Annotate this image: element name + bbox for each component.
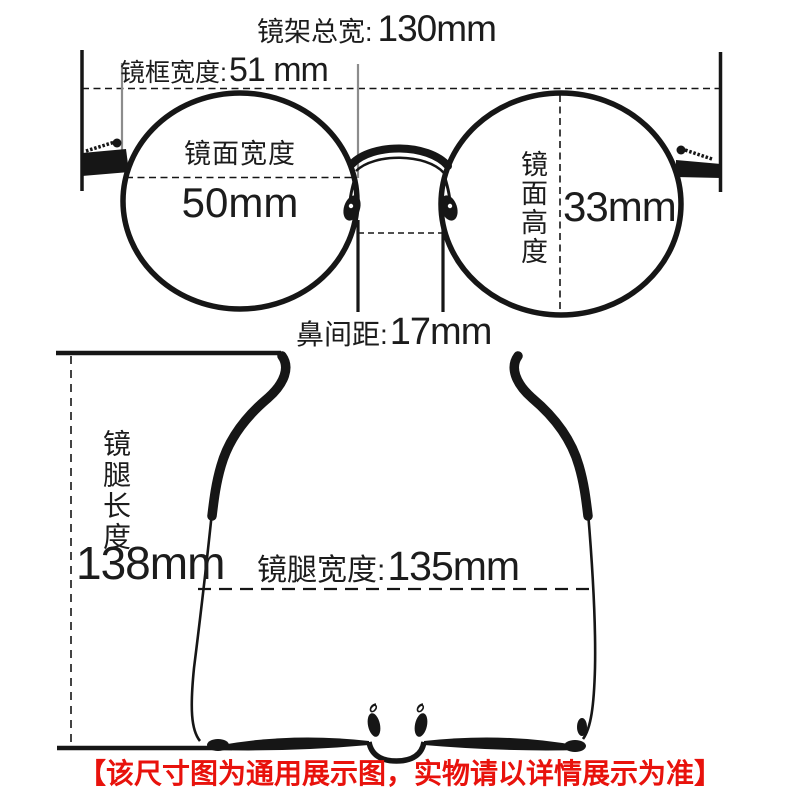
lens-width-annotation: 镜面宽度 50mm xyxy=(135,141,345,224)
nose-pad-right-hole xyxy=(448,204,452,208)
temple-length-value: 138mm xyxy=(76,540,224,586)
temple-stub-left xyxy=(82,149,129,176)
temple-right-upper xyxy=(514,356,588,516)
temple-width-annotation: 镜腿宽度: 135mm xyxy=(257,546,519,587)
temple-stub-right xyxy=(676,160,721,178)
nose-pad-right-wire xyxy=(417,704,423,712)
nose-distance-label: 鼻间距: xyxy=(296,321,388,349)
nose-distance-value: 17mm xyxy=(390,313,492,351)
total-width-value: 130mm xyxy=(378,10,496,47)
temple-right-hinge-bump xyxy=(577,718,587,736)
lens-width-value: 50mm xyxy=(135,182,345,224)
frame-width-annotation: 镜框宽度: 51 mm xyxy=(120,53,328,87)
nose-pad-left-hole xyxy=(349,204,353,208)
temple-stub-right-knob xyxy=(677,146,686,155)
frame-bar-left xyxy=(215,737,369,750)
temple-right-lower xyxy=(583,512,595,739)
temple-stub-left-knob xyxy=(113,139,122,148)
temple-width-label: 镜腿宽度: xyxy=(257,556,385,586)
nose-pad-left-wire xyxy=(370,704,376,712)
footer-disclaimer: 【该尺寸图为通用展示图，实物请以详情展示为准】 xyxy=(0,760,800,788)
frame-bar-right xyxy=(424,737,580,750)
nose-distance-annotation: 鼻间距: 17mm xyxy=(296,313,491,351)
lens-width-label: 镜面宽度 xyxy=(135,141,345,168)
lens-height-label: 镜面高度 xyxy=(518,150,545,266)
frame-width-label: 镜框宽度: xyxy=(120,61,227,86)
bridge-front-lower-edge xyxy=(356,158,444,173)
nose-pad-right-top-view xyxy=(413,712,430,738)
nose-pad-left-top-view xyxy=(366,712,383,738)
frame-width-value: 51 mm xyxy=(229,53,328,87)
glasses-diagram-artwork xyxy=(0,0,800,800)
total-width-annotation: 镜架总宽: 130mm xyxy=(257,10,496,47)
temple-left-upper xyxy=(212,356,286,516)
temple-length-label: 镜腿长度 xyxy=(101,429,129,553)
temple-width-value: 135mm xyxy=(387,546,519,587)
lens-height-value: 33mm xyxy=(563,186,676,228)
temple-stub-right-hinge xyxy=(682,149,712,159)
total-width-label: 镜架总宽: xyxy=(257,19,373,46)
product-dimension-diagram: 镜架总宽: 130mm 镜框宽度: 51 mm 镜面宽度 50mm 镜面高度 3… xyxy=(0,0,800,800)
